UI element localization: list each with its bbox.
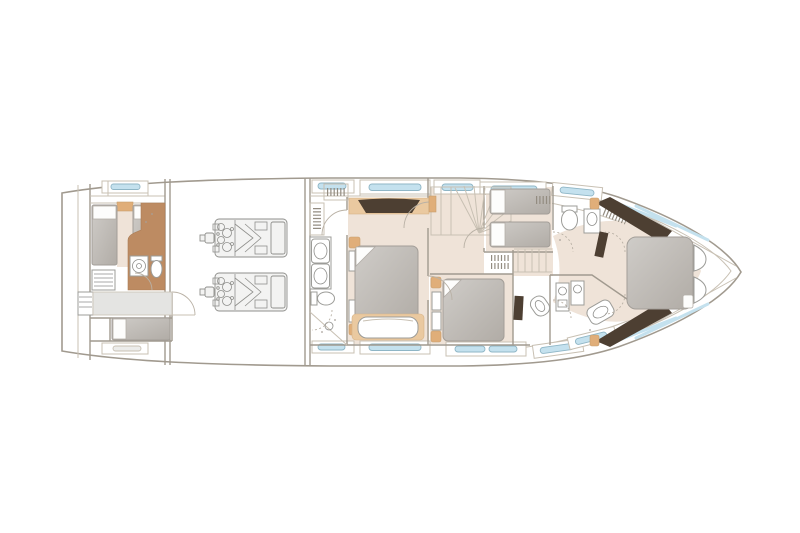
stern-hatch: [113, 346, 141, 351]
hull-window: [489, 346, 517, 352]
stair-accent: [429, 196, 436, 212]
yacht-floorplan-page: Yacht lower deck floor plan: [0, 0, 800, 533]
engine-port: [200, 219, 287, 257]
bed-corner-step: [683, 295, 693, 308]
toilet-icon: [562, 210, 578, 230]
hull-window: [455, 346, 485, 352]
toilet-icon: [318, 292, 335, 305]
stacked-locker: [78, 292, 93, 315]
walkway-step: [117, 202, 133, 211]
pillow: [93, 206, 116, 219]
hull-window: [369, 184, 421, 191]
drain-dot: [334, 319, 336, 321]
toilet-cistern: [311, 292, 317, 305]
drain-dot: [321, 331, 323, 333]
pillow: [113, 319, 126, 339]
wardrobe-end-accent: [590, 198, 599, 209]
spec-dot: [151, 213, 153, 215]
bedside-unit: [432, 292, 441, 310]
engine-starboard: [200, 273, 287, 311]
hull-window: [111, 184, 140, 190]
drain-dot: [589, 329, 591, 331]
toilet-icon: [151, 261, 162, 278]
pillow: [491, 190, 505, 213]
tv-panel: [513, 296, 523, 320]
drawer-unit: [92, 270, 115, 290]
bedside-unit: [432, 312, 441, 330]
spec-dot: [145, 221, 147, 223]
companionway: [93, 292, 172, 315]
wardrobe-end-accent: [590, 335, 599, 346]
pillow: [491, 223, 505, 246]
lower-deck-plan: Yacht lower deck floor plan: [0, 0, 800, 533]
spec-dot: [559, 239, 561, 241]
nightstand: [431, 331, 441, 342]
